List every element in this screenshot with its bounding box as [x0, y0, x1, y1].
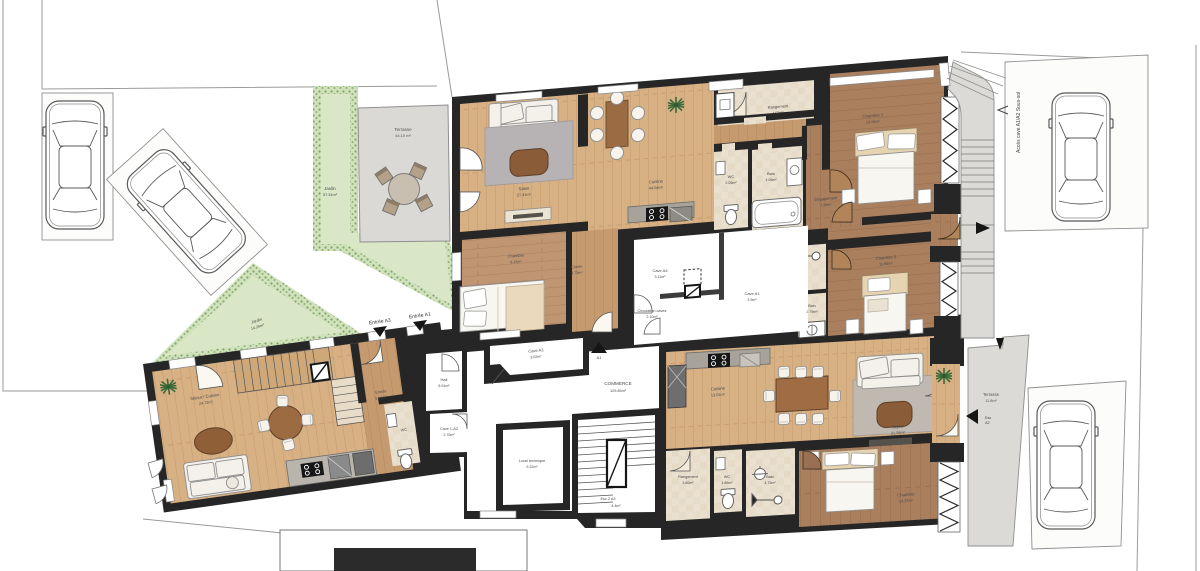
svg-text:Terrasse: Terrasse [394, 127, 412, 132]
svg-text:44.10 m²: 44.10 m² [395, 133, 411, 138]
svg-text:129.85m²: 129.85m² [610, 389, 627, 393]
svg-text:2.70m²: 2.70m² [443, 433, 455, 437]
svg-text:Hall: Hall [441, 377, 448, 382]
svg-text:WC: WC [728, 174, 735, 179]
svg-text:9.12m²: 9.12m² [510, 260, 522, 265]
svg-text:11.8m²: 11.8m² [985, 399, 997, 403]
svg-text:4.73m²: 4.73m² [764, 481, 776, 485]
svg-text:Rangement: Rangement [678, 475, 699, 479]
svg-text:A2: A2 [985, 421, 990, 425]
svg-text:3.9m²: 3.9m² [747, 298, 757, 302]
svg-text:Accès cave A1/A2 Sous-sol: Accès cave A1/A2 Sous-sol [1016, 92, 1022, 153]
svg-text:Bain: Bain [808, 304, 816, 308]
svg-text:1.89m²: 1.89m² [721, 481, 733, 485]
svg-text:3.11m²: 3.11m² [655, 275, 667, 279]
svg-text:WC: WC [724, 475, 731, 479]
svg-text:A1: A1 [597, 355, 603, 360]
svg-text:Jardin: Jardin [324, 186, 336, 191]
svg-text:9.22m²: 9.22m² [526, 465, 538, 469]
svg-text:Terrasse: Terrasse [983, 392, 1000, 397]
svg-text:Cave A4: Cave A4 [652, 268, 668, 273]
svg-text:Séjour: Séjour [892, 424, 905, 430]
svg-text:6.91m²: 6.91m² [438, 384, 450, 388]
svg-text:Cuisine: Cuisine [711, 385, 726, 391]
svg-text:COMMERCE: COMMERCE [604, 381, 631, 386]
svg-text:Esc: Esc [985, 416, 991, 420]
svg-text:Cave 1-A2: Cave 1-A2 [440, 427, 458, 431]
svg-text:2.79m²: 2.79m² [806, 310, 818, 314]
svg-text:2.05m²: 2.05m² [725, 181, 737, 185]
svg-text:4.05m²: 4.05m² [765, 178, 777, 182]
svg-text:Entrée: Entrée [571, 265, 582, 270]
svg-text:Salon: Salon [518, 186, 530, 192]
svg-text:Bain: Bain [766, 475, 774, 479]
svg-text:3.80m²: 3.80m² [682, 481, 694, 485]
svg-text:2.10m²: 2.10m² [646, 315, 658, 319]
svg-text:Cuisine: Cuisine [649, 178, 664, 184]
svg-text:3.73m²: 3.73m² [571, 271, 583, 276]
svg-text:Esc.2 A3: Esc.2 A3 [601, 497, 616, 501]
svg-text:57.31m²: 57.31m² [323, 193, 338, 197]
svg-text:4.4m²: 4.4m² [611, 504, 621, 508]
svg-text:Cave A1: Cave A1 [744, 291, 760, 296]
svg-text:Circulation caves: Circulation caves [638, 309, 667, 313]
svg-text:Local technique: Local technique [519, 459, 546, 463]
svg-text:Bain: Bain [767, 171, 775, 176]
